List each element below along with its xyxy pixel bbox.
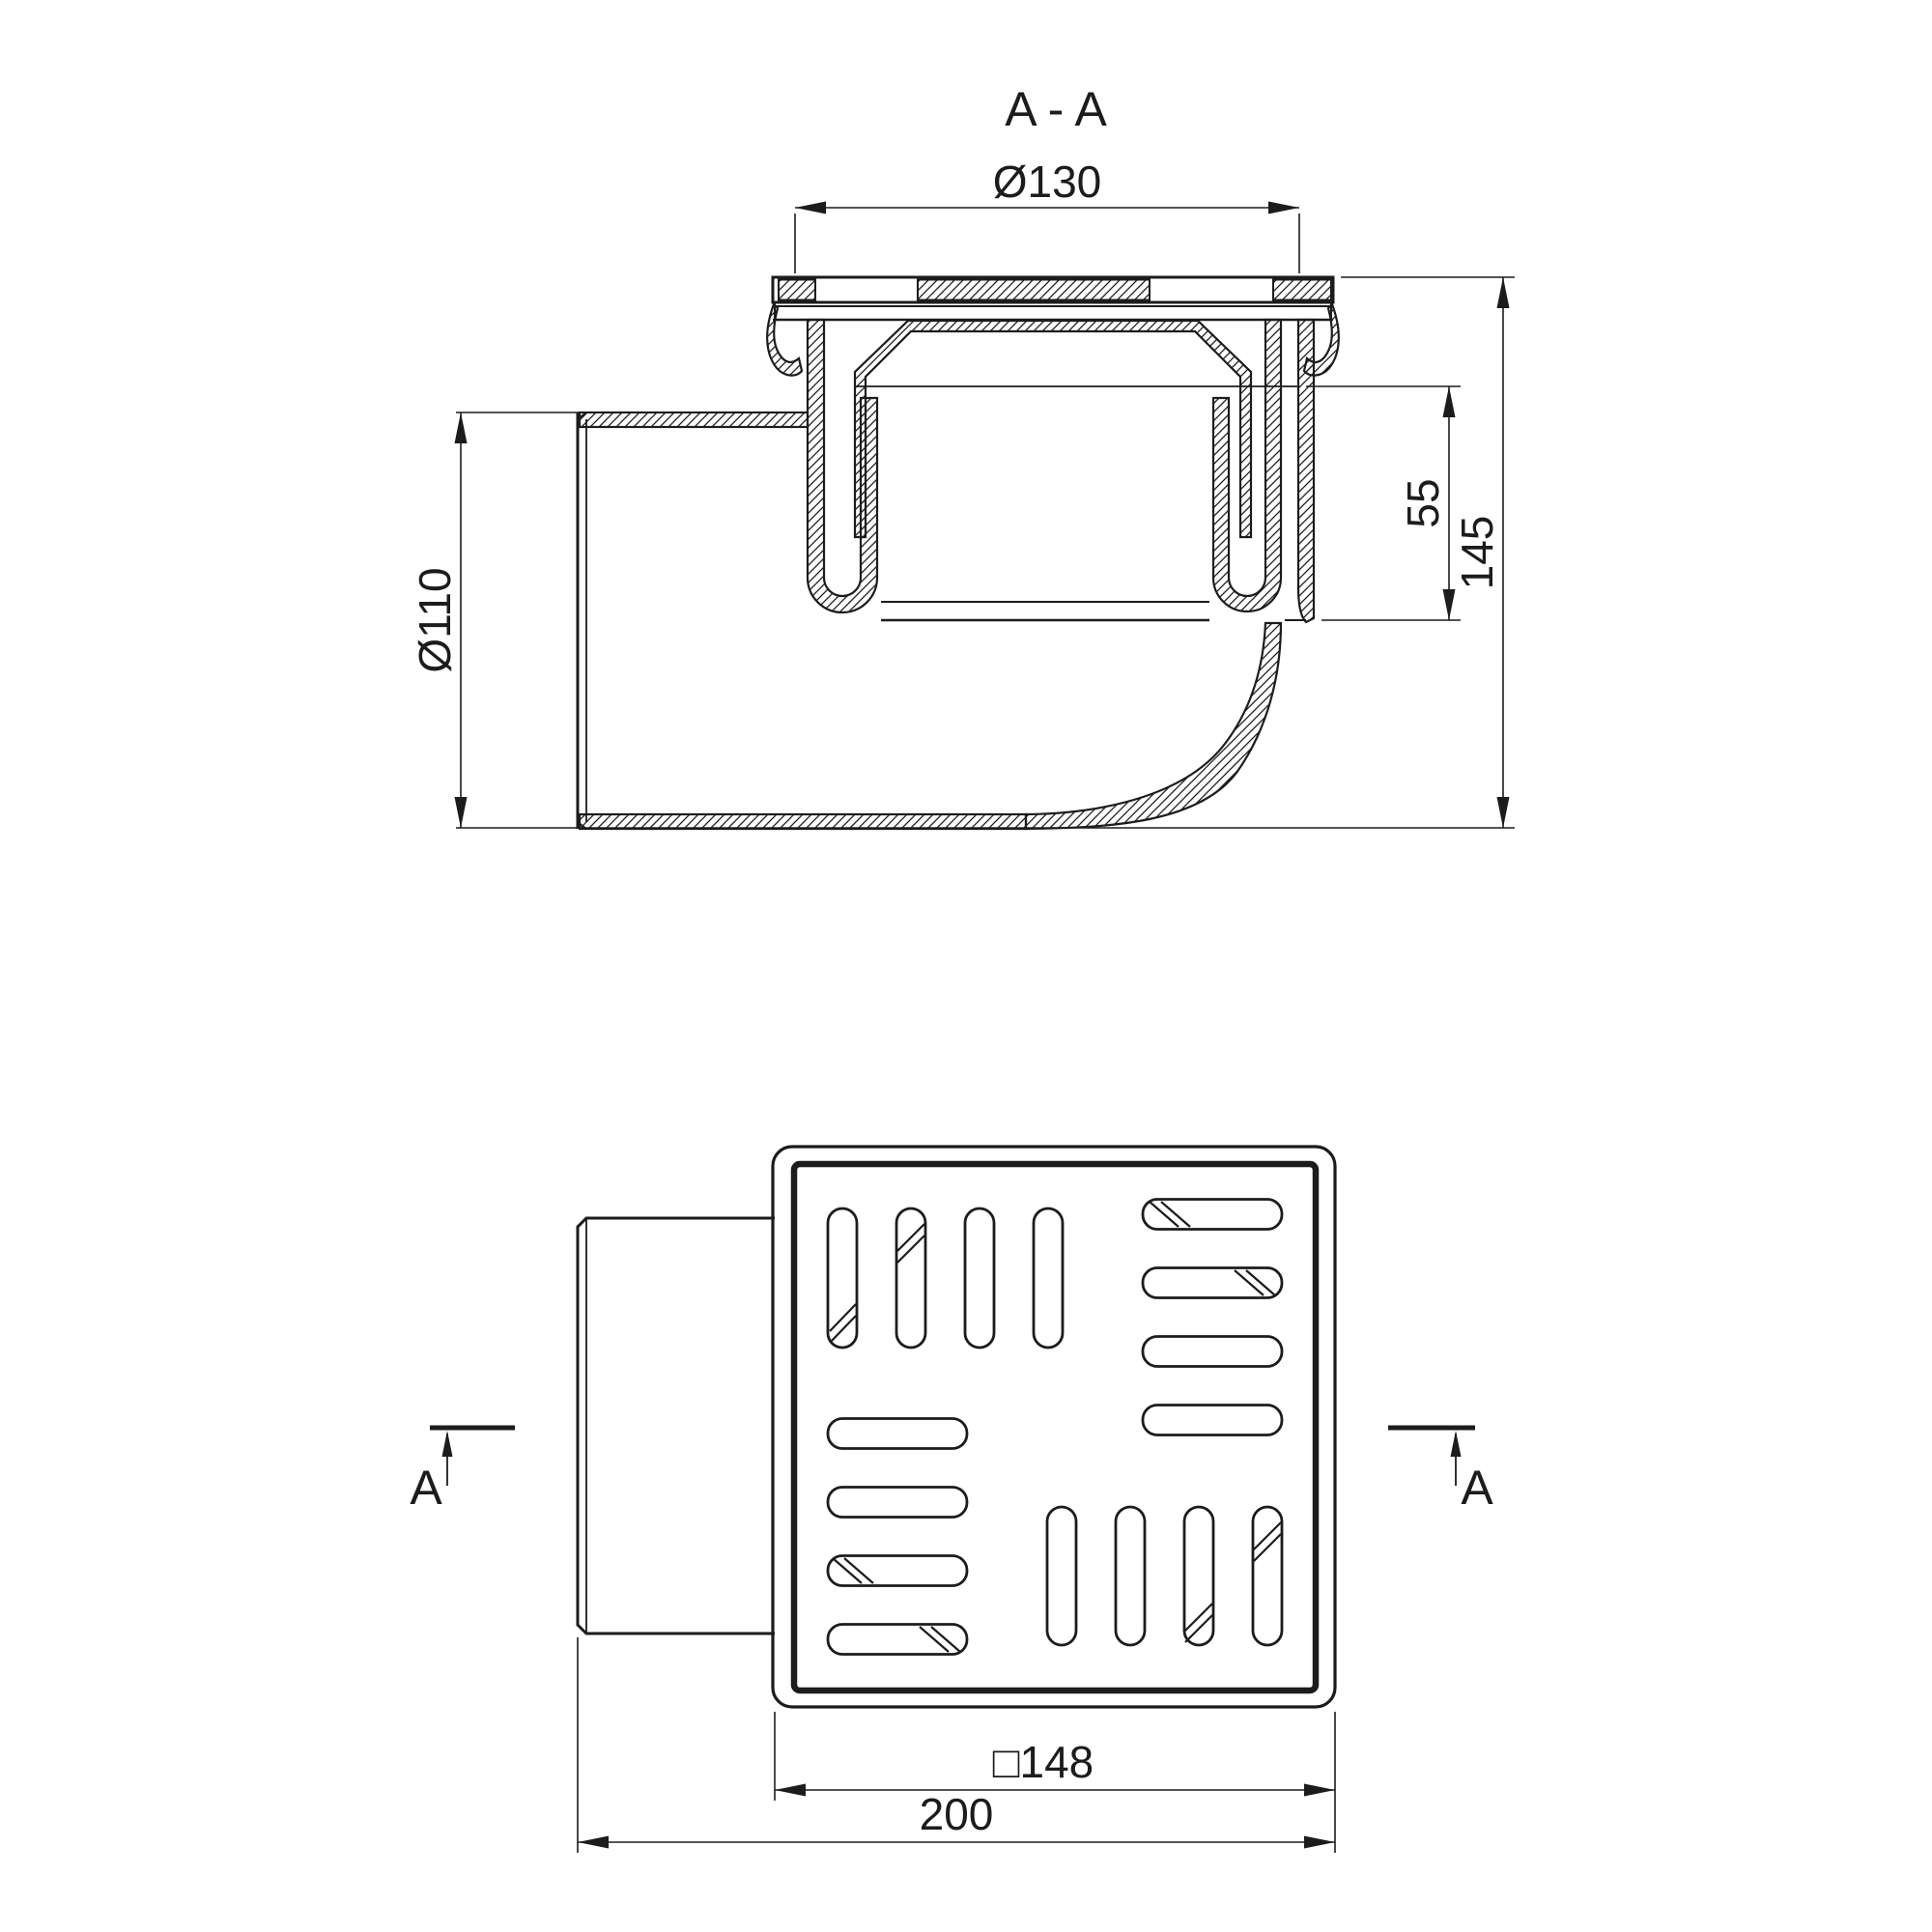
- arrow-left-icon: [795, 202, 826, 214]
- dim-label-145: 145: [1452, 516, 1502, 590]
- dim-label-d110: Ø110: [410, 567, 460, 672]
- dim-label-square148: □148: [993, 1737, 1094, 1787]
- elbow-wall: [1026, 623, 1281, 829]
- arrow-down-icon: [455, 797, 468, 828]
- view-direction-arrow-icon: [442, 1431, 453, 1457]
- flange-lip-left: [767, 304, 802, 376]
- grate-section: [773, 277, 1333, 302]
- grate-slots: [828, 1200, 1282, 1655]
- arrow-down-icon: [1443, 589, 1456, 620]
- dimension-grate-square: □148: [775, 1712, 1335, 1853]
- arrow-right-icon: [1304, 1784, 1335, 1797]
- arrow-left-icon: [775, 1784, 806, 1797]
- plan-view: A A □148 200: [410, 1147, 1493, 1853]
- section-title: A - A: [1005, 82, 1107, 136]
- arrow-down-icon: [1497, 797, 1510, 828]
- outlet-pipe-plan: [578, 1218, 775, 1634]
- arrow-up-icon: [455, 412, 468, 443]
- arrow-up-icon: [1497, 277, 1510, 308]
- arrow-right-icon: [1268, 202, 1299, 214]
- section-cut-marker-right: A: [1388, 1428, 1493, 1515]
- dimension-total-height: 145: [1341, 277, 1515, 828]
- drawing-sheet: A - A Ø130: [0, 0, 1932, 1932]
- dim-label-200: 200: [920, 1789, 994, 1839]
- arrow-up-icon: [1443, 386, 1456, 417]
- section-cut-marker-left: A: [410, 1428, 515, 1515]
- section-view: A - A Ø130: [410, 82, 1515, 829]
- section-cut-label-right: A: [1461, 1461, 1493, 1515]
- view-direction-arrow-icon: [1451, 1431, 1462, 1457]
- arrow-right-icon: [1304, 1836, 1335, 1849]
- floor-drain-technical-drawing: A - A Ø130: [0, 0, 1932, 1932]
- section-cut-label-left: A: [410, 1461, 442, 1515]
- dimension-trap-depth: 55: [1306, 386, 1461, 620]
- dim-label-55: 55: [1398, 478, 1448, 527]
- dimension-pipe-diameter: Ø110: [410, 412, 580, 828]
- arrow-left-icon: [578, 1836, 609, 1849]
- body-rim-section: [773, 302, 1333, 320]
- dim-label-d130: Ø130: [993, 156, 1102, 207]
- dimension-total-length: 200: [578, 1637, 1335, 1853]
- body-wall-right: [1298, 320, 1314, 622]
- bell-insert-section: [855, 321, 1251, 537]
- dimension-top-diameter: Ø130: [795, 156, 1299, 273]
